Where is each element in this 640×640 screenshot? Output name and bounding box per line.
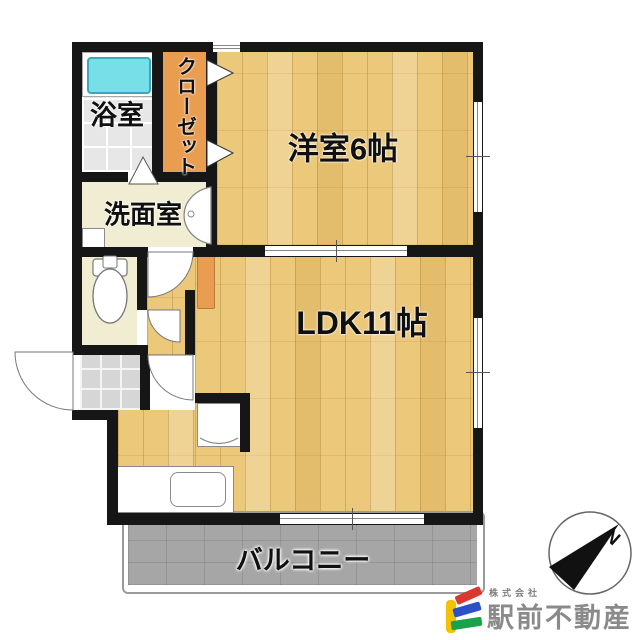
label-washroom: 洗面室 — [104, 195, 182, 232]
toilet-door-swing — [148, 310, 180, 342]
floorplan: N 浴室 クローゼット 洗面室 洋室6帖 LDK11帖 バルコニー 株式会社 駅… — [0, 0, 640, 640]
logo-company-name: 駅前不動産 — [487, 596, 632, 635]
toilet-bowl — [93, 269, 127, 323]
bathroom-door-triangle — [129, 157, 158, 184]
company-logo: 株式会社 駅前不動産 — [440, 582, 640, 637]
label-closet: クローゼット — [171, 56, 200, 176]
washer-pan-curve — [200, 438, 238, 444]
label-western-room: 洋室6帖 — [288, 124, 398, 169]
closet-door-triangle-top — [207, 60, 233, 86]
toilet-lid — [103, 256, 117, 268]
label-balcony: バルコニー — [236, 539, 370, 578]
logo-mark — [440, 582, 485, 637]
washbasin-faucet — [188, 211, 194, 217]
hall-door-swing — [148, 355, 193, 400]
entrance-door-swing — [15, 352, 73, 410]
label-bathroom: 浴室 — [90, 94, 144, 133]
closet-door-triangle-bottom — [207, 140, 233, 167]
washroom-door-swing — [148, 252, 193, 297]
label-ldk: LDK11帖 — [296, 298, 428, 344]
